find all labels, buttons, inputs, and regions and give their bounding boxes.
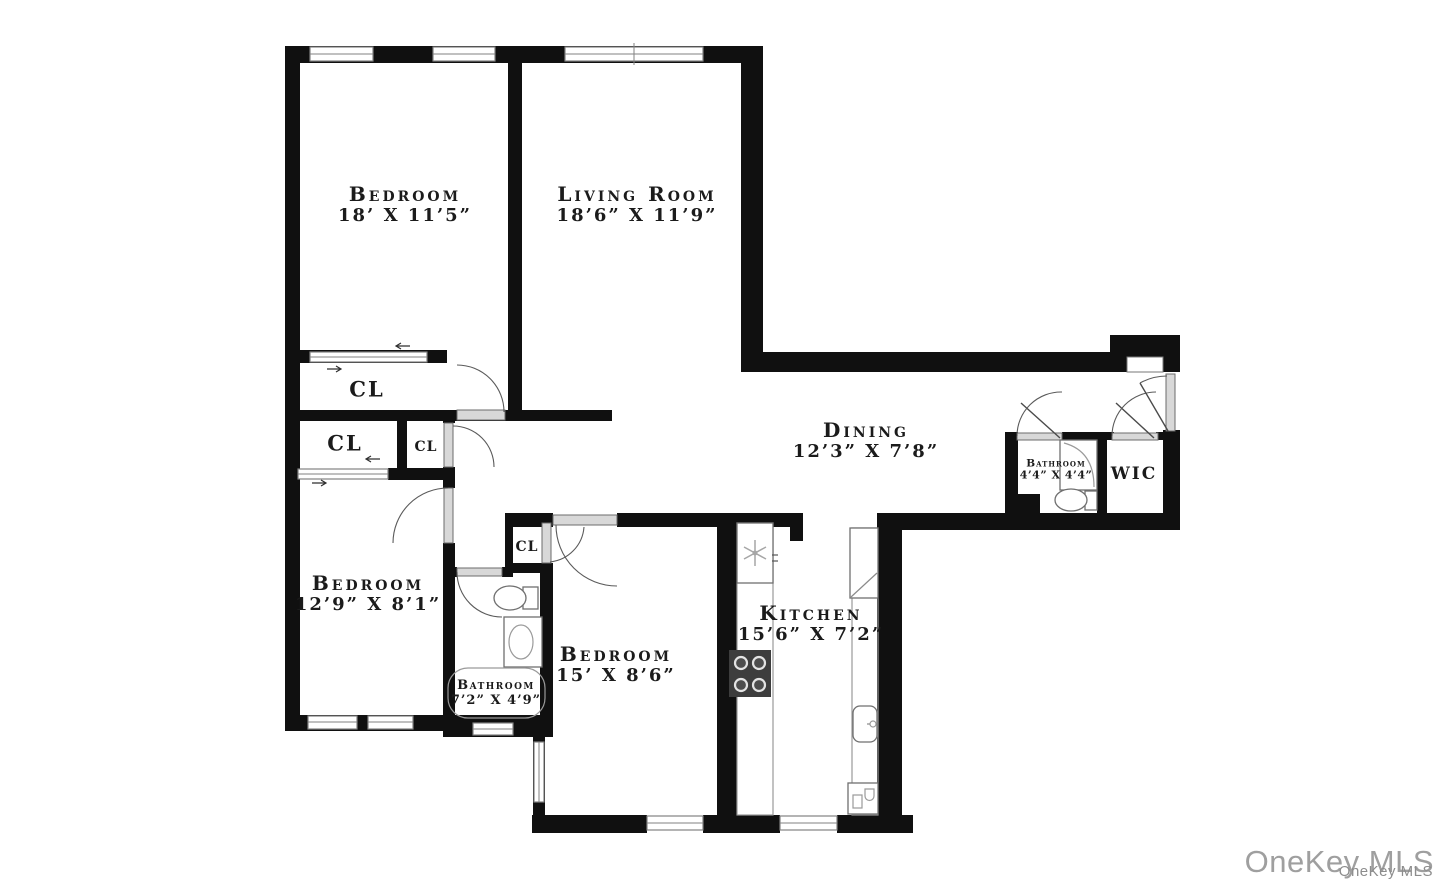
room-name: Dining [793,419,939,442]
floor-plan-page: Bedroom 18’ X 11’5” Living Room 18’6” X … [0,0,1440,883]
stove-icon [729,650,771,697]
room-name: Living Room [557,183,718,206]
room-name: Bedroom [338,183,472,206]
sliding-door [310,352,427,362]
room-label-bedroom-top: Bedroom 18’ X 11’5” [338,183,472,227]
room-name: Bedroom [556,643,675,666]
room-dimensions: 15’ X 8’6” [556,666,675,687]
room-label-living-room: Living Room 18’6” X 11’9” [557,183,718,227]
room-label-bathroom-ensuite: Bathroom 4’4” X 4’4” [1020,458,1093,483]
floor-plan-drawing [0,0,1440,883]
room-name: Bathroom [451,679,541,694]
room-label-dining: Dining 12’3” X 7’8” [793,419,939,463]
room-dimensions: 12’9” X 8’1” [295,595,441,616]
dishwasher-icon [848,783,878,814]
closet-label-cl2: CL [327,431,362,456]
door-closet-cl4 [542,523,584,563]
room-label-kitchen: Kitchen 15’6” X 7’2” [738,602,884,646]
room-dimensions: 12’3” X 7’8” [793,442,939,463]
entry-niche [1127,357,1163,372]
room-name: Bedroom [295,572,441,595]
window [310,47,373,61]
room-dimensions: 7’2” X 4’9” [451,694,541,709]
room-dimensions: 18’6” X 11’9” [557,206,718,227]
door-closet-cl3 [444,423,494,467]
entry-door [1140,374,1175,431]
kitchen-sink-icon [853,706,877,742]
window [308,716,357,729]
room-label-bedroom-middle: Bedroom 15’ X 8’6” [556,643,675,687]
fan-icon [737,523,778,583]
door-living-hall [457,365,505,420]
sliding-door [298,469,388,479]
door-wic [1112,392,1158,440]
window [534,742,544,802]
room-dimensions: 15’6” X 7’2” [738,625,884,646]
room-label-bathroom-main: Bathroom 7’2” X 4’9” [451,679,541,709]
watermark-onekey-mls-small: OneKey MLS [1339,864,1433,879]
door-bedroom-left [393,488,453,543]
room-name: Kitchen [738,602,884,625]
closet-label-cl3: CL [415,439,438,455]
window [780,816,837,830]
window [368,716,413,729]
window [647,816,703,830]
kitchen-fixtures [729,523,878,815]
toilet-icon [494,586,538,610]
sink-icon [504,617,542,667]
toilet-icon [1055,489,1097,511]
closet-label-cl1: CL [349,377,384,402]
room-label-bedroom-left: Bedroom 12’9” X 8’1” [295,572,441,616]
room-label-wic: WIC [1111,465,1158,485]
room-name: WIC [1111,465,1158,485]
room-dimensions: 4’4” X 4’4” [1020,470,1093,483]
door-bathroom-ensuite [1017,392,1062,440]
door-bedroom-middle [553,515,617,586]
closet-label-cl4: CL [516,539,539,555]
room-dimensions: 18’ X 11’5” [338,206,472,227]
window [473,723,513,735]
refrigerator-icon [850,528,878,598]
window [433,47,495,61]
